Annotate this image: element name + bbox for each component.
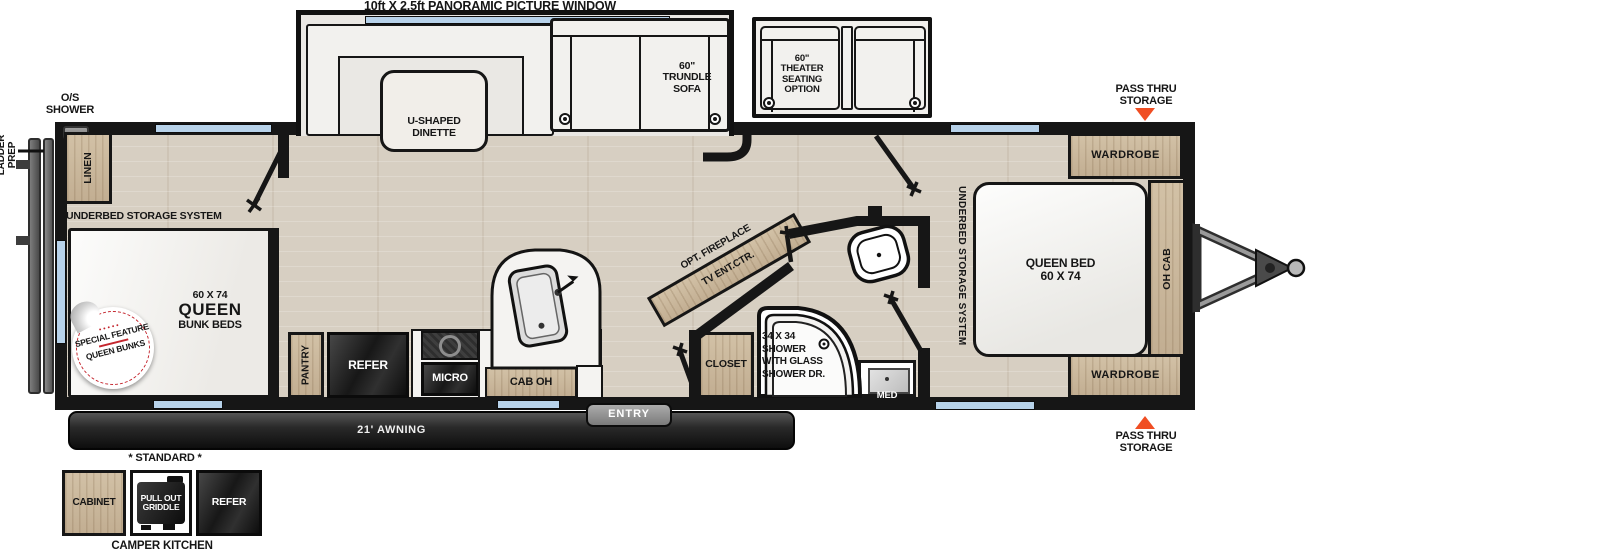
bunk-type: BUNK BEDS <box>150 320 270 332</box>
theater-grommet-right <box>909 97 921 109</box>
sofa-back <box>553 21 727 37</box>
dinette-table: U-SHAPED DINETTE <box>380 70 488 152</box>
queen-bed-label: QUEEN BED 60 X 74 <box>1026 257 1096 283</box>
pantry-label: PANTRY <box>301 345 312 385</box>
griddle-body-icon: PULL OUT GRIDDLE <box>137 482 185 524</box>
camper-refer-label: REFER <box>212 497 247 508</box>
griddle-label: PULL OUT GRIDDLE <box>141 494 182 512</box>
oh-cab: OH CAB <box>1148 180 1186 358</box>
oh-cab-label: OH CAB <box>1161 248 1173 289</box>
standard-label: * STANDARD * <box>108 453 222 465</box>
bedroom-wall-lower <box>268 228 279 398</box>
camper-kitchen-title: CAMPER KITCHEN <box>92 540 232 552</box>
micro-label: MICRO <box>432 373 468 385</box>
wardrobe-bottom: WARDROBE <box>1068 354 1183 398</box>
bunk-name: QUEEN <box>150 301 270 319</box>
theater-label: 60" THEATER SEATING OPTION <box>762 54 842 95</box>
underbed-rear-label: UNDERBED STORAGE SYSTEM <box>950 186 966 361</box>
pass-thru-top-label: PASS THRU STORAGE <box>1098 84 1194 108</box>
entry-label: ENTRY <box>608 409 650 421</box>
pass-thru-bottom-arrow <box>1135 416 1155 429</box>
microwave: MICRO <box>421 362 479 396</box>
refer-label: REFER <box>348 359 388 372</box>
trundle-sofa: 60" TRUNDLE SOFA <box>550 18 730 132</box>
window-bottom-bunk <box>153 400 223 409</box>
med-label: MED <box>860 391 914 401</box>
window-rear <box>56 240 66 344</box>
ladder-mount-bottom <box>16 236 30 245</box>
bath-wall-stub <box>868 206 882 220</box>
bumper-bar-inner <box>43 138 54 394</box>
wardrobe-top: WARDROBE <box>1068 133 1183 179</box>
bunk-text: 60 X 74 QUEEN BUNK BEDS <box>150 290 270 332</box>
sofa-grommet-left <box>559 113 571 125</box>
window-top-right <box>950 124 1040 133</box>
entry-door: ENTRY <box>586 403 672 427</box>
refer: REFER <box>327 332 409 398</box>
camper-cabinet-label: CABINET <box>72 498 115 509</box>
window-bottom-bath <box>935 401 1035 410</box>
theater-seating: 60" THEATER SEATING OPTION <box>752 17 932 118</box>
awning-bar: 21' AWNING <box>68 411 795 450</box>
sofa-grommet-right <box>709 113 721 125</box>
closet-label: CLOSET <box>705 359 746 370</box>
queen-bed: QUEEN BED 60 X 74 <box>973 182 1148 357</box>
sofa-label: 60" TRUNDLE SOFA <box>647 61 727 95</box>
pantry: PANTRY <box>288 332 324 398</box>
awning-label: 21' AWNING <box>357 425 426 437</box>
linen-label: LINEN <box>82 152 94 184</box>
pull-out-griddle: PULL OUT GRIDDLE <box>130 470 192 536</box>
theater-console <box>841 26 853 110</box>
floorplan: 10ft X 2.5ft PANORAMIC PICTURE WINDOW U-… <box>0 0 1600 554</box>
pass-thru-top-arrow <box>1135 108 1155 121</box>
bumper-bar-outer <box>28 138 41 394</box>
window-top-left <box>155 124 272 133</box>
cab-oh-label: CAB OH <box>510 377 552 389</box>
dinette-label: U-SHAPED DINETTE <box>407 116 460 139</box>
sofa-cushion-divider <box>639 37 641 129</box>
camper-refer: REFER <box>196 470 262 536</box>
stove-cooktop <box>421 331 479 360</box>
theater-grommet-left <box>763 97 775 109</box>
underbed-front-label: UNDERBED STORAGE SYSTEM <box>66 211 246 222</box>
cab-oh: CAB OH <box>485 367 577 398</box>
wardrobe-bottom-label: WARDROBE <box>1091 370 1160 382</box>
linen-closet: LINEN <box>64 132 112 204</box>
pass-thru-bottom-label: PASS THRU STORAGE <box>1098 431 1194 455</box>
camper-cabinet: CABINET <box>62 470 126 536</box>
hitch <box>1197 224 1304 312</box>
wardrobe-top-label: WARDROBE <box>1091 150 1160 162</box>
ladder-prep-label: LADDER PREP <box>0 120 21 190</box>
window-bottom-kitchen <box>497 400 560 409</box>
os-shower-label: O/S SHOWER <box>28 93 112 117</box>
special-feature-badge: ••••• SPECIAL FEATURE QUEEN BUNKS <box>72 307 154 389</box>
shower-label: 34 X 34 SHOWER WITH GLASS SHOWER DR. <box>762 331 866 381</box>
bedroom-wall-upper <box>278 128 289 178</box>
closet: CLOSET <box>698 332 754 398</box>
